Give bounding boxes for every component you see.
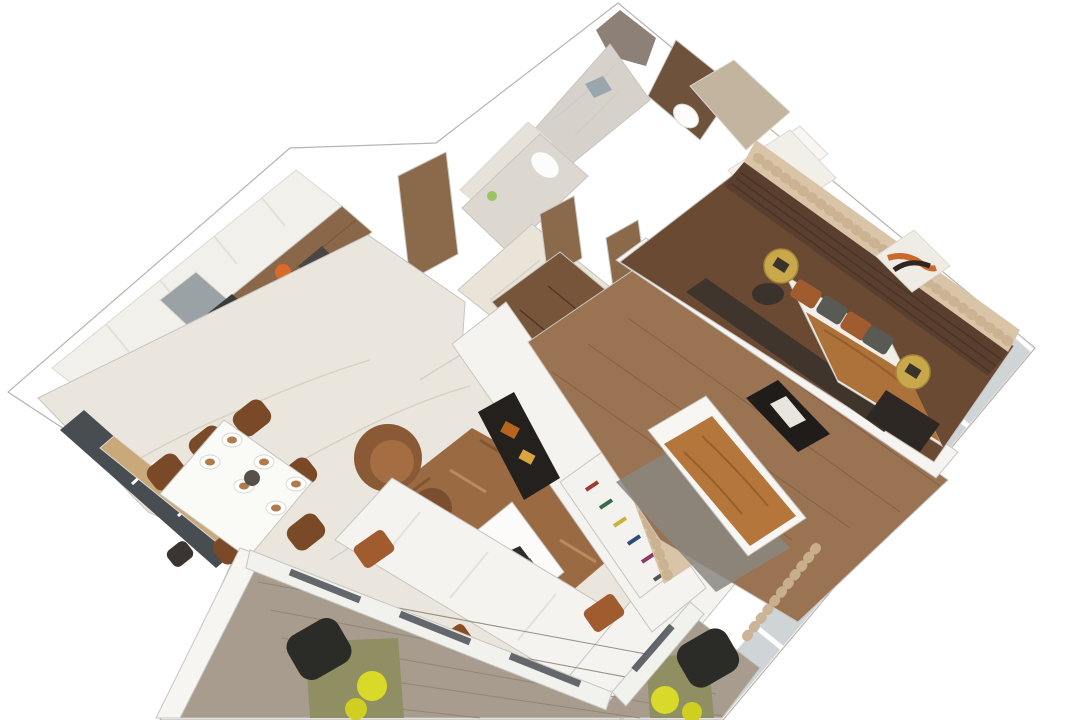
door-kitchen <box>398 152 458 280</box>
floor-plant <box>752 283 784 305</box>
floorplan-svg <box>0 0 1075 720</box>
floorplan-render <box>0 0 1075 720</box>
armchair-cushion <box>370 440 414 484</box>
bath-bottle <box>487 191 497 201</box>
centerpiece <box>244 470 260 486</box>
pouf-yellow-small <box>345 698 367 720</box>
pouf-yellow-2 <box>651 686 679 714</box>
pouf-yellow <box>357 671 387 701</box>
